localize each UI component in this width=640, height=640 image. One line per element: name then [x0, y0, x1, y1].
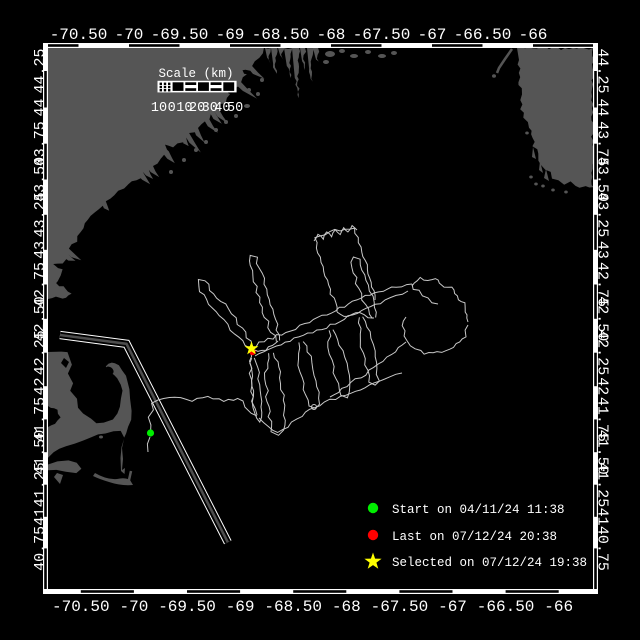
svg-text:-67.50: -67.50: [371, 598, 429, 616]
svg-text:43: 43: [32, 241, 49, 259]
svg-text:-68: -68: [332, 598, 361, 616]
svg-text:40.75: 40.75: [32, 526, 49, 571]
svg-text:41.25: 41.25: [32, 462, 49, 507]
svg-text:-68.50: -68.50: [252, 26, 310, 44]
svg-text:Last on 07/12/24 20:38: Last on 07/12/24 20:38: [392, 530, 557, 544]
svg-text:50: 50: [227, 101, 243, 116]
svg-text:-70: -70: [115, 26, 144, 44]
svg-text:-70: -70: [119, 598, 148, 616]
svg-text:-69: -69: [226, 598, 255, 616]
svg-text:-67: -67: [418, 26, 447, 44]
svg-text:43: 43: [594, 241, 611, 259]
svg-text:-70.50: -70.50: [50, 26, 108, 44]
svg-text:41.25: 41.25: [594, 462, 611, 507]
svg-text:44.25: 44.25: [594, 48, 611, 93]
svg-text:40.75: 40.75: [594, 526, 611, 571]
svg-text:-67: -67: [438, 598, 467, 616]
svg-text:43.25: 43.25: [594, 192, 611, 237]
svg-text:-69: -69: [216, 26, 245, 44]
svg-text:-70.50: -70.50: [52, 598, 110, 616]
svg-text:Scale (km): Scale (km): [158, 67, 233, 81]
svg-text:-66.50: -66.50: [477, 598, 535, 616]
svg-text:10: 10: [151, 101, 167, 116]
svg-text:-66: -66: [519, 26, 548, 44]
svg-text:-66.50: -66.50: [454, 26, 512, 44]
svg-text:42: 42: [594, 377, 611, 395]
svg-text:41: 41: [594, 508, 611, 526]
svg-text:-69.50: -69.50: [158, 598, 216, 616]
svg-text:43.25: 43.25: [32, 192, 49, 237]
svg-text:42.25: 42.25: [594, 330, 611, 375]
svg-text:0: 0: [168, 101, 176, 116]
svg-text:Start on 04/11/24 11:38: Start on 04/11/24 11:38: [392, 503, 565, 517]
svg-text:44.25: 44.25: [32, 48, 49, 93]
svg-text:42.25: 42.25: [32, 330, 49, 375]
svg-text:-69.50: -69.50: [151, 26, 209, 44]
svg-text:41: 41: [32, 508, 49, 526]
svg-text:44: 44: [594, 98, 611, 116]
svg-text:44: 44: [32, 98, 49, 116]
svg-text:-68: -68: [317, 26, 346, 44]
svg-text:Selected on 07/12/24 19:38: Selected on 07/12/24 19:38: [392, 556, 587, 570]
svg-text:-68.50: -68.50: [264, 598, 322, 616]
svg-text:42: 42: [32, 377, 49, 395]
svg-text:-66: -66: [544, 598, 573, 616]
svg-text:-67.50: -67.50: [353, 26, 411, 44]
